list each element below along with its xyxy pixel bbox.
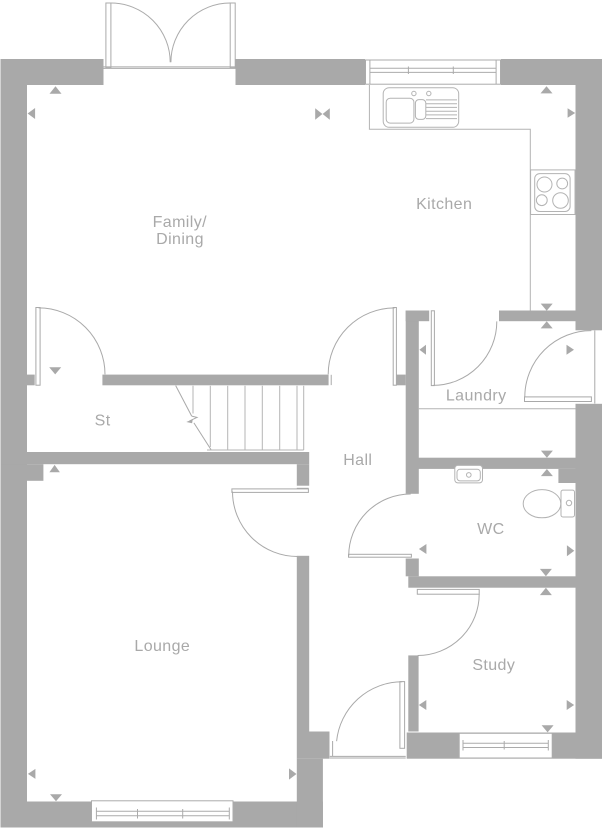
svg-text:Kitchen: Kitchen <box>416 196 472 213</box>
svg-text:Laundry: Laundry <box>446 388 507 405</box>
svg-text:Lounge: Lounge <box>134 638 190 655</box>
svg-text:Hall: Hall <box>343 452 372 469</box>
svg-text:Study: Study <box>472 657 515 674</box>
svg-text:Family/: Family/ <box>153 214 208 231</box>
svg-text:WC: WC <box>477 521 504 538</box>
svg-text:Dining: Dining <box>156 231 204 248</box>
svg-text:St: St <box>95 413 111 430</box>
